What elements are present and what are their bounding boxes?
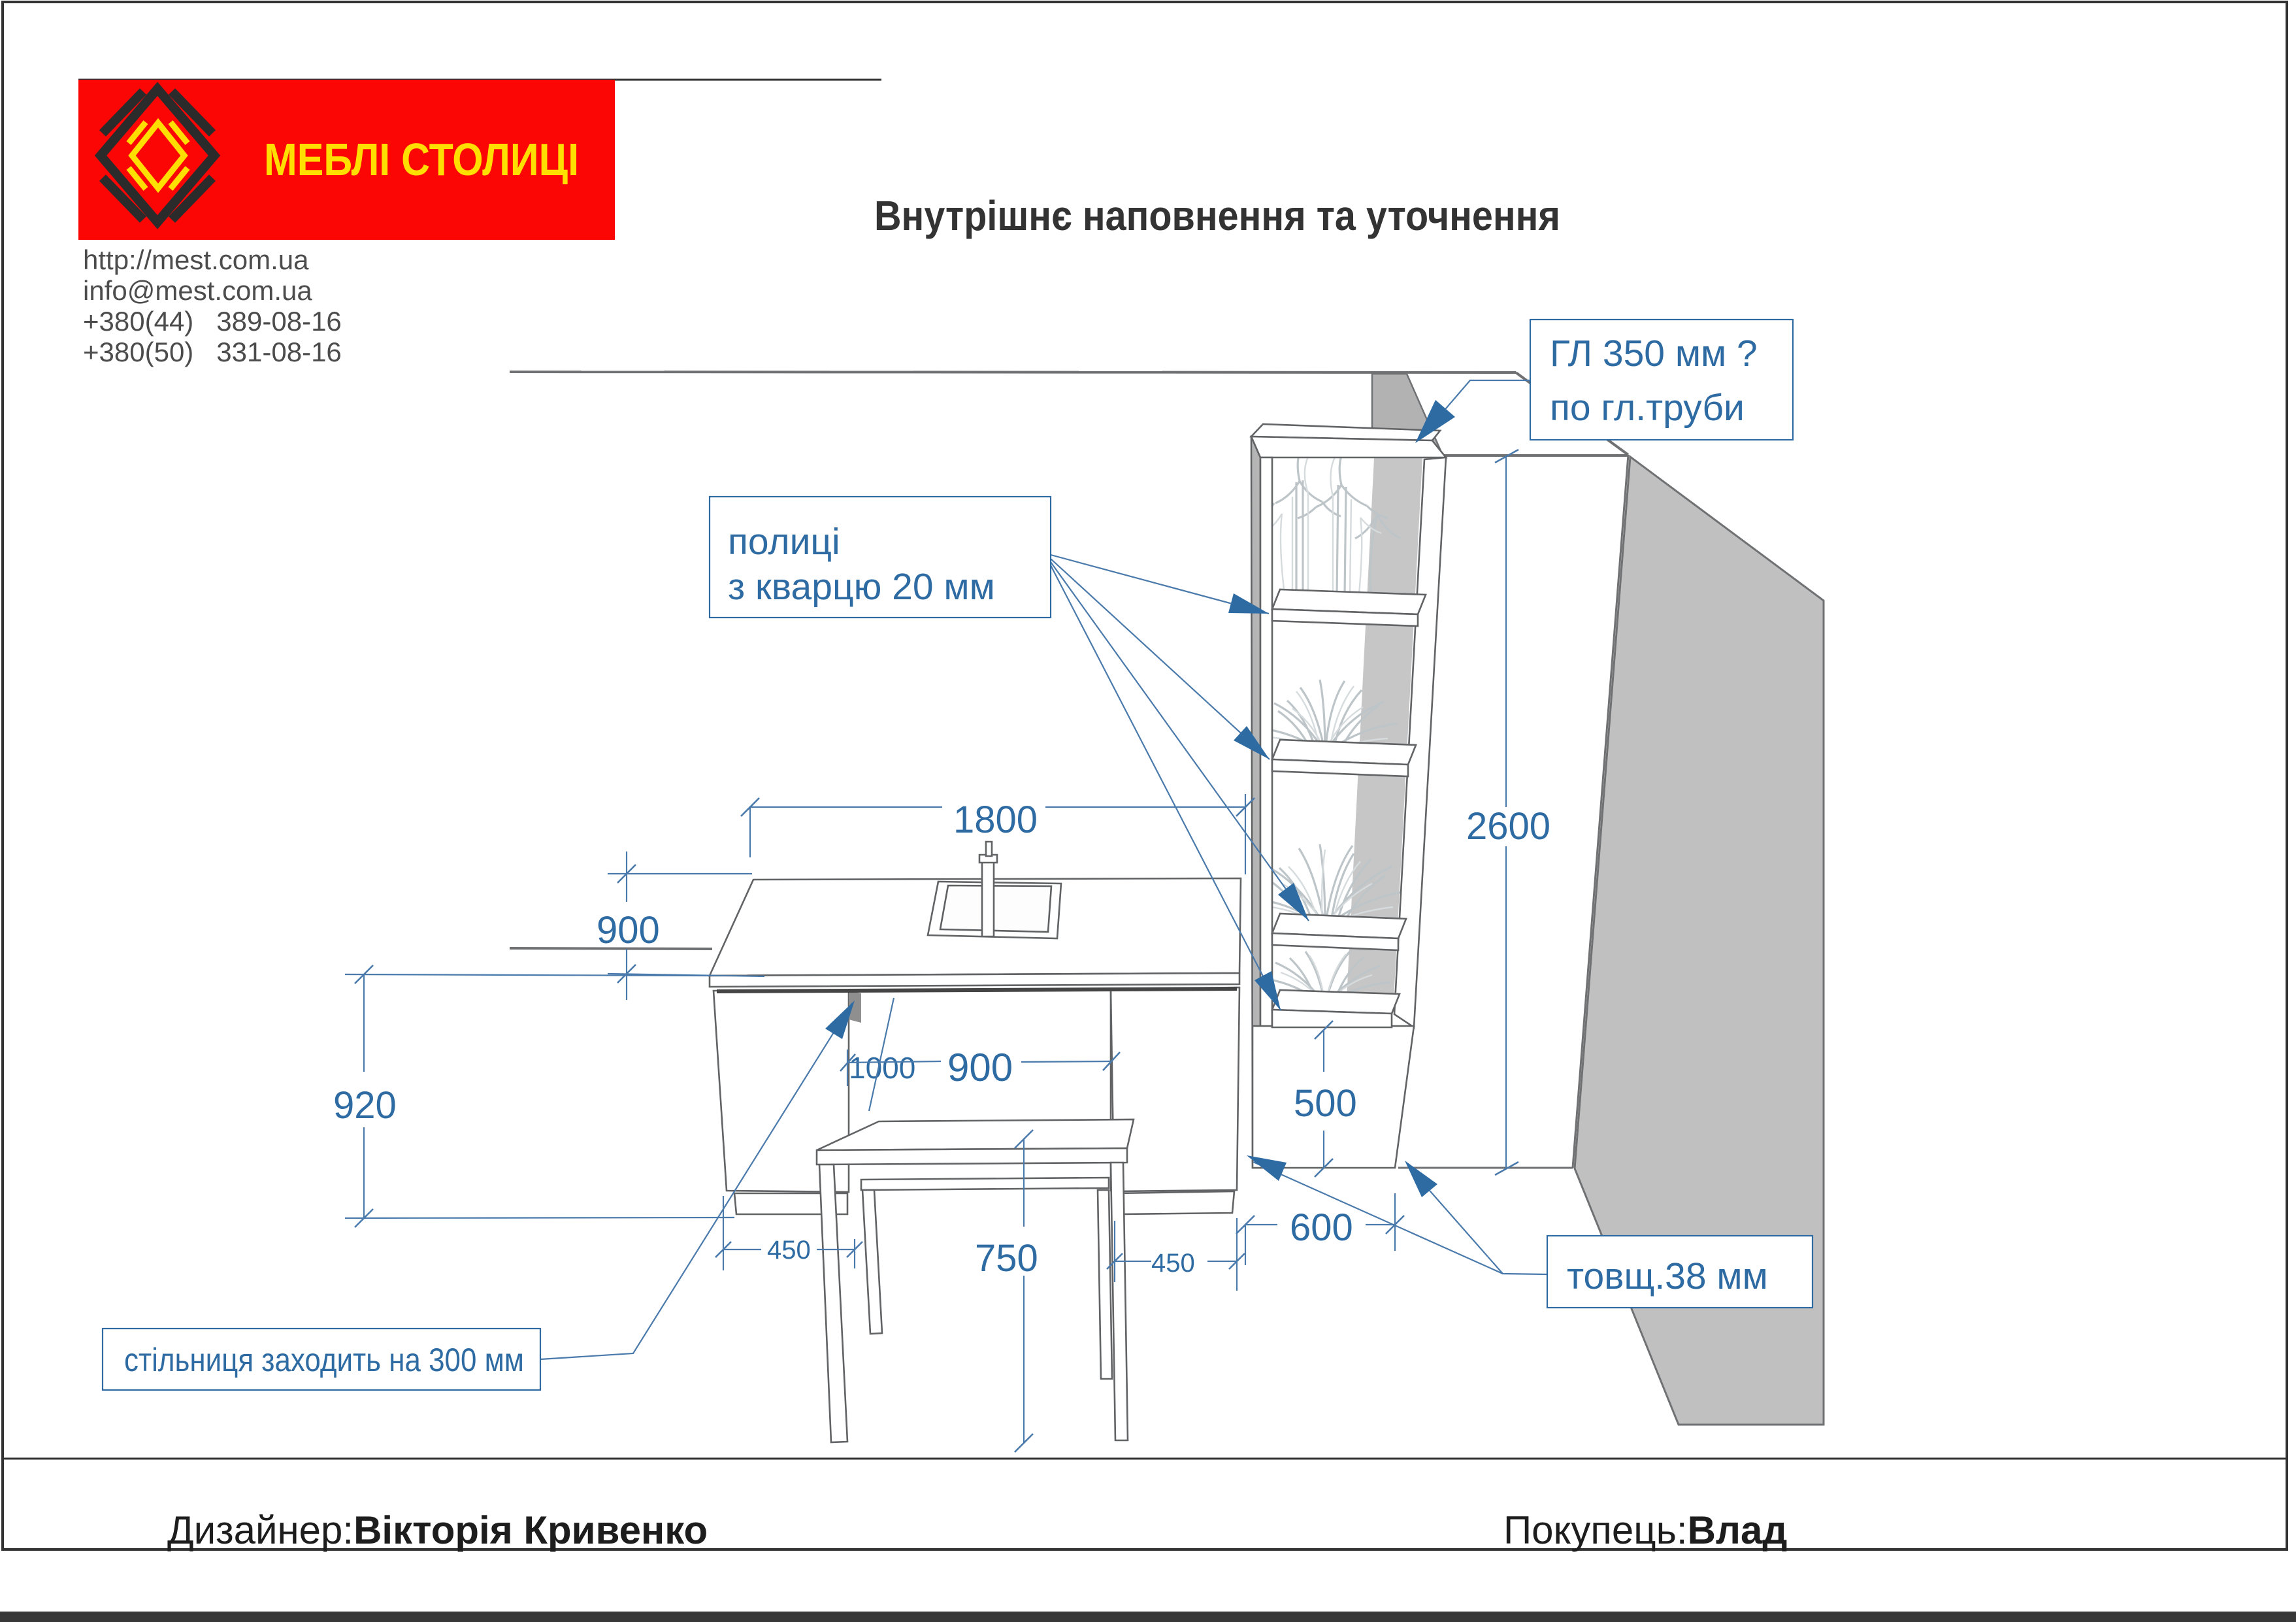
svg-text:1000: 1000 <box>849 1051 915 1085</box>
svg-text:920: 920 <box>333 1084 397 1127</box>
svg-text:стільниця заходить на 300 мм: стільниця заходить на 300 мм <box>124 1342 524 1378</box>
svg-text:з кварцю 20 мм: з кварцю 20 мм <box>728 566 995 608</box>
svg-text:+380(50) 331-08-16: +380(50) 331-08-16 <box>83 337 342 367</box>
svg-text:1800: 1800 <box>953 799 1038 841</box>
svg-text:Внутрішнє наповнення та уточне: Внутрішнє наповнення та уточнення <box>874 192 1560 239</box>
svg-text:Дизайнер:Вікторія Кривенко: Дизайнер:Вікторія Кривенко <box>167 1508 708 1552</box>
svg-text:info@mest.com.ua: info@mest.com.ua <box>83 275 312 306</box>
svg-text:500: 500 <box>1294 1082 1357 1125</box>
svg-text:900: 900 <box>947 1046 1013 1089</box>
svg-text:2600: 2600 <box>1466 805 1550 848</box>
svg-text:600: 600 <box>1290 1206 1353 1249</box>
svg-text:900: 900 <box>597 909 660 952</box>
svg-text:750: 750 <box>975 1237 1038 1280</box>
svg-text:ГЛ 350 мм ?: ГЛ 350 мм ? <box>1550 333 1758 374</box>
svg-text:по гл.труби: по гл.труби <box>1550 387 1745 429</box>
svg-text:Покупець:Влад: Покупець:Влад <box>1503 1508 1787 1552</box>
svg-text:МЕБЛІ СТОЛИЦІ: МЕБЛІ СТОЛИЦІ <box>264 134 579 185</box>
svg-text:450: 450 <box>767 1236 811 1265</box>
svg-text:полиці: полиці <box>728 521 840 563</box>
svg-text:+380(44) 389-08-16: +380(44) 389-08-16 <box>83 306 342 337</box>
svg-text:http://mest.com.ua: http://mest.com.ua <box>83 244 309 275</box>
svg-text:450: 450 <box>1151 1249 1195 1278</box>
svg-text:товщ.38 мм: товщ.38 мм <box>1567 1255 1768 1297</box>
